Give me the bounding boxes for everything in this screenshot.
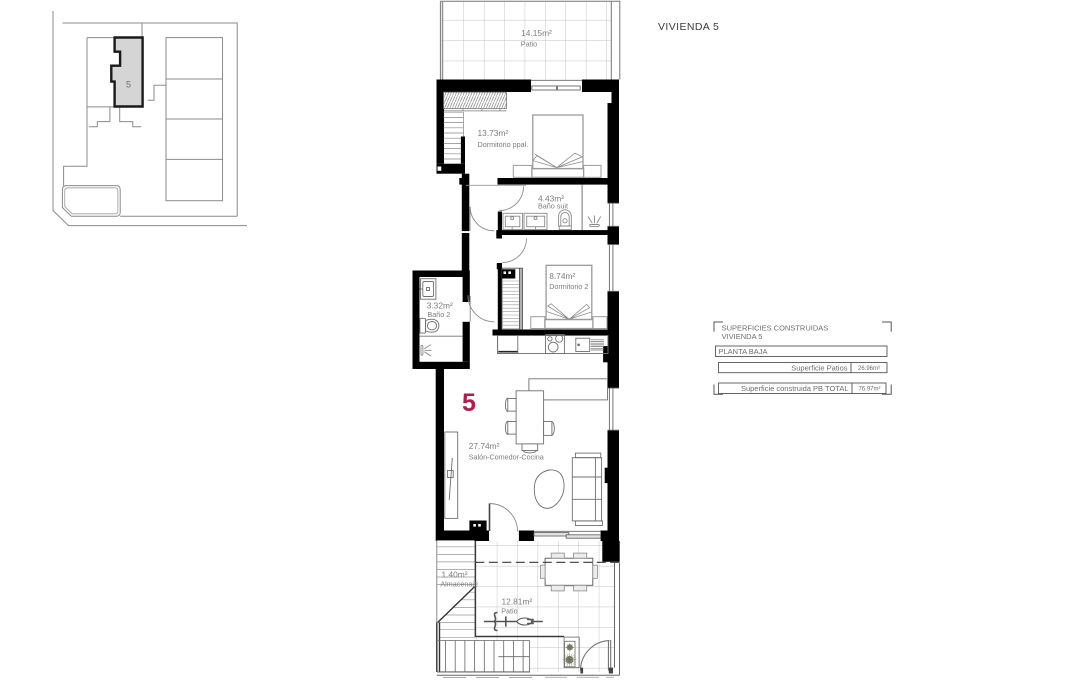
svg-text:Patio: Patio	[521, 40, 537, 49]
svg-text:Baño 2: Baño 2	[428, 310, 451, 319]
svg-text:Patio: Patio	[501, 607, 517, 616]
svg-text:3.32m²: 3.32m²	[427, 301, 453, 311]
svg-text:14.15m²: 14.15m²	[521, 28, 552, 38]
svg-text:Superficie Patios: Superficie Patios	[791, 363, 848, 372]
svg-text:Salón-Comedor-Cocina: Salón-Comedor-Cocina	[469, 453, 544, 462]
svg-text:PLANTA BAJA: PLANTA BAJA	[719, 347, 768, 356]
svg-text:76.97m²: 76.97m²	[858, 386, 880, 392]
svg-text:26.96m²: 26.96m²	[858, 366, 880, 372]
svg-text:1.40m²: 1.40m²	[442, 570, 468, 580]
svg-text:13.73m²: 13.73m²	[478, 128, 509, 138]
svg-text:Superficie construida PB TOTAL: Superficie construida PB TOTAL	[741, 384, 849, 393]
svg-text:Dormitorio 2: Dormitorio 2	[549, 282, 588, 291]
svg-text:Almacenaje: Almacenaje	[440, 580, 478, 589]
svg-text:8.74m²: 8.74m²	[549, 271, 575, 281]
svg-text:Dormitorio ppal.: Dormitorio ppal.	[478, 140, 529, 149]
svg-text:27.74m²: 27.74m²	[469, 441, 500, 451]
svg-text:VIVIENDA 5: VIVIENDA 5	[722, 332, 763, 341]
svg-text:VIVIENDA 5: VIVIENDA 5	[658, 21, 719, 33]
svg-text:Baño suit: Baño suit	[538, 202, 568, 211]
svg-text:5: 5	[462, 389, 476, 417]
svg-text:5: 5	[126, 80, 131, 90]
svg-text:12.81m²: 12.81m²	[502, 597, 533, 607]
